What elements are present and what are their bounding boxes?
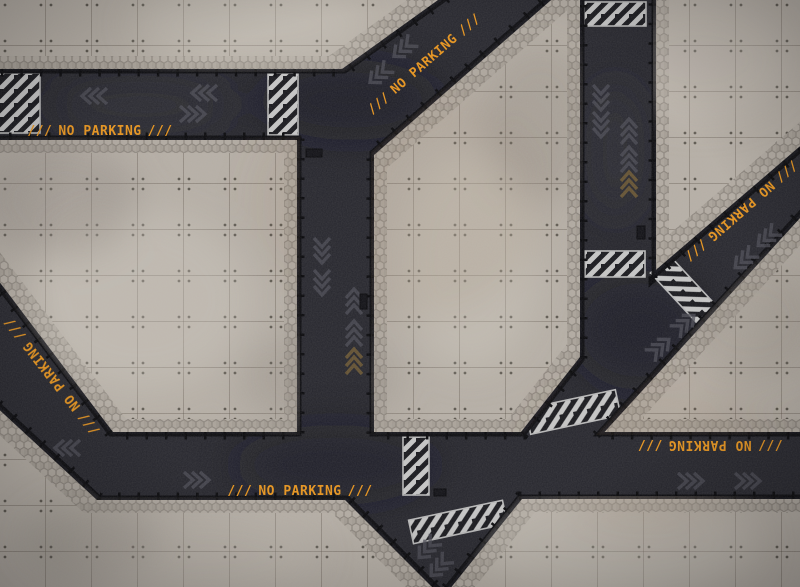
game-mat: ///NO PARKING/// ///NO PARKING/// ///NO … <box>0 0 800 587</box>
game-mat-surface: ///NO PARKING/// ///NO PARKING/// ///NO … <box>0 0 800 587</box>
vignette-overlay <box>0 0 800 587</box>
